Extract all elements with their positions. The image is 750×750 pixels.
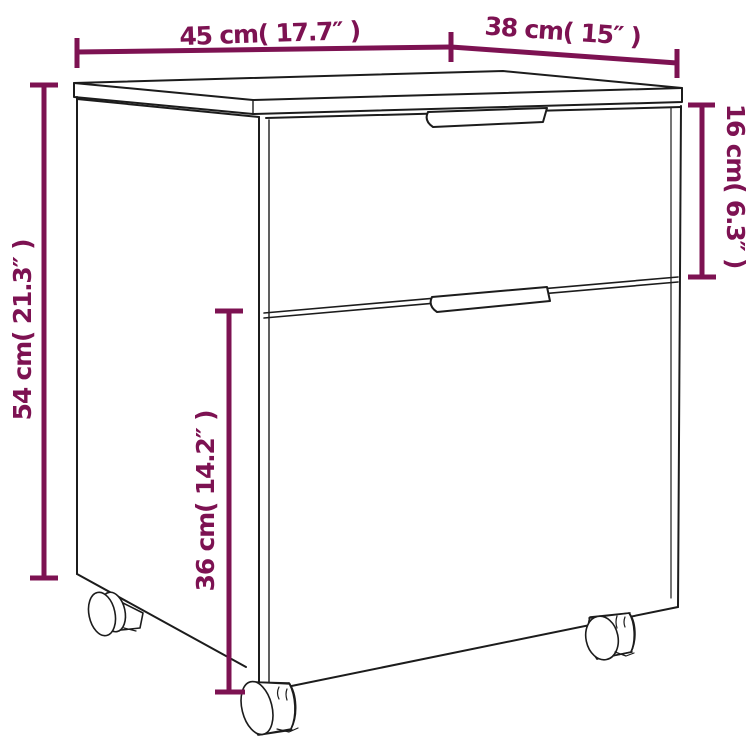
dim-label-bottom-drawer: 36 cm( 14.2″ )	[191, 411, 220, 592]
cabinet-diagram-canvas: 45 cm( 17.7″ ) 38 cm( 15″ ) 54 cm( 21.3″…	[0, 0, 750, 750]
cabinet-front-face	[266, 106, 681, 691]
caster-back-left	[85, 590, 143, 638]
product-dimension-diagram: 45 cm( 17.7″ ) 38 cm( 15″ ) 54 cm( 21.3″…	[0, 0, 750, 750]
dim-label-top-drawer: 16 cm( 6.3″ )	[721, 104, 750, 268]
dimension-top-drawer	[688, 105, 716, 277]
caster-front-left	[236, 678, 298, 738]
dim-label-width: 45 cm( 17.7″ )	[179, 16, 361, 51]
top-drawer-handle	[427, 108, 547, 127]
dim-label-depth: 38 cm( 15″ )	[484, 12, 642, 52]
dimension-annotations: 45 cm( 17.7″ ) 38 cm( 15″ ) 54 cm( 21.3″…	[8, 12, 750, 692]
dim-label-height: 54 cm( 21.3″ )	[8, 240, 37, 421]
bottom-drawer-handle	[431, 287, 550, 312]
cabinet-drawing	[74, 71, 682, 738]
caster-front-right	[582, 613, 635, 663]
